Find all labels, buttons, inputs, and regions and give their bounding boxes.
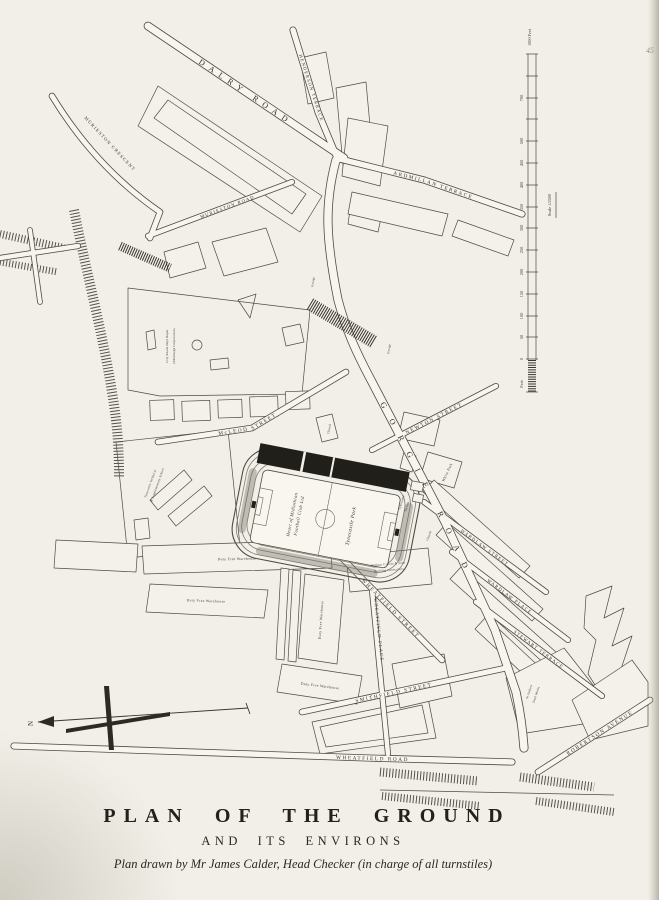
scale-top-label: 1000 Feet — [527, 28, 532, 46]
map-svg: Heart of Midlothian Football Club Ltd Ty… — [0, 0, 659, 900]
depot-label-2: (Edinburgh Corporation) — [172, 328, 176, 363]
page-edge-shadow — [648, 0, 659, 900]
scale-tick: 300 — [519, 225, 524, 231]
scanned-plan-page: Heart of Midlothian Football Club Ltd Ty… — [0, 0, 659, 900]
scale-tick: 350 — [519, 204, 524, 210]
scale-tick: 500 — [519, 138, 524, 144]
credit-line: Plan drawn by Mr James Calder, Head Chec… — [113, 857, 492, 871]
scale-tick: 50 — [519, 335, 524, 339]
scale-ratio-label: Scale 1/2500 — [547, 194, 552, 216]
warehouse-label-1: Duty Free Warehouse — [218, 557, 257, 562]
scale-tick: 100 — [519, 313, 524, 319]
scale-bottom-label: Feet — [519, 379, 524, 387]
scale-tick: 200 — [519, 269, 524, 275]
scale-tick: 700 — [519, 95, 524, 101]
scale-tick: 250 — [519, 247, 524, 253]
scale-tick: 450 — [519, 160, 524, 166]
north-label: N — [27, 721, 35, 726]
page-subtitle: AND ITS ENVIRONS — [201, 834, 404, 848]
scale-tick: 150 — [519, 291, 524, 297]
depot-label-1: City Roads Dept Depot — [165, 329, 169, 362]
scale-tick: 400 — [519, 182, 524, 188]
scale-tick: 0 — [519, 358, 524, 360]
page-title: PLAN OF THE GROUND — [103, 805, 510, 827]
